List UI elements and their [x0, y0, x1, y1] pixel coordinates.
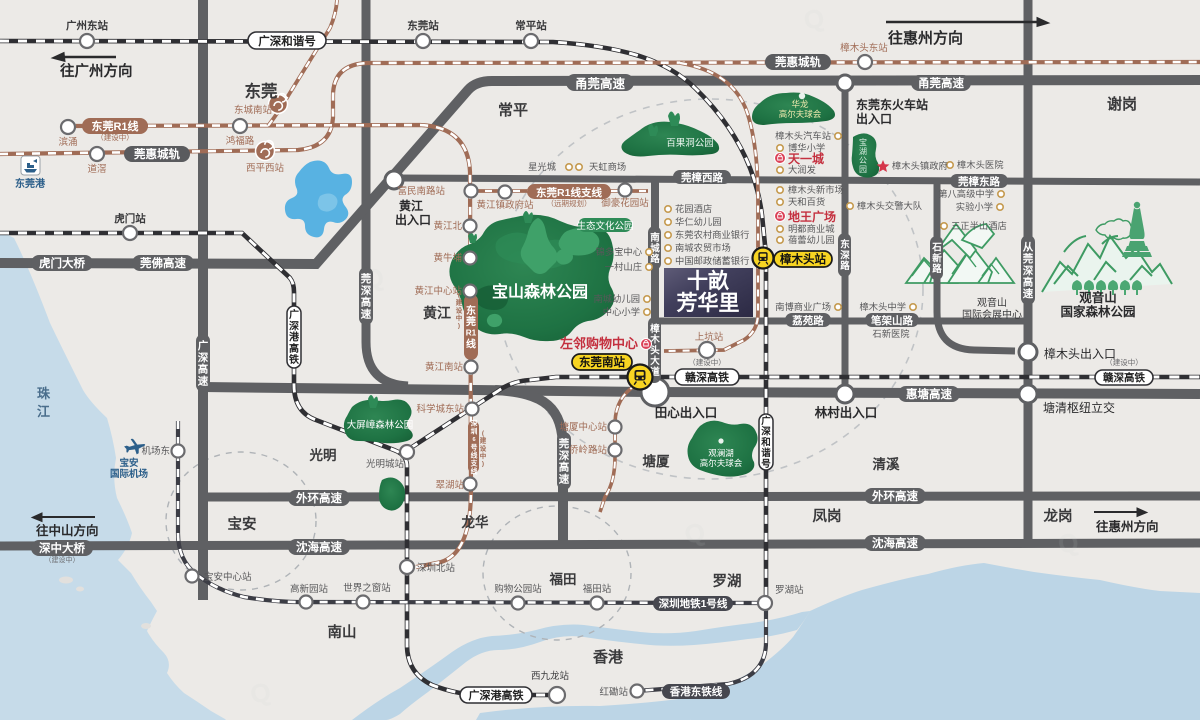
svg-text:樟木头中学: 樟木头中学 [860, 301, 907, 312]
svg-text:南山: 南山 [328, 623, 357, 641]
svg-text:石: 石 [931, 243, 942, 254]
svg-text:一村山庄: 一村山庄 [605, 261, 642, 272]
svg-text:三正半山酒店: 三正半山酒店 [951, 220, 1007, 231]
svg-text:谐: 谐 [761, 447, 771, 459]
svg-text:深: 深 [840, 249, 850, 261]
svg-text:左邻购物中心: 左邻购物中心 [560, 336, 638, 351]
svg-text:（建设中）: （建设中） [45, 555, 80, 564]
svg-text:广: 广 [198, 339, 209, 352]
svg-text:福田: 福田 [549, 571, 577, 587]
svg-text:往惠州方向: 往惠州方向 [1096, 519, 1159, 534]
svg-text:华仁幼儿园: 华仁幼儿园 [675, 216, 722, 227]
svg-text:第八高级中学: 第八高级中学 [938, 188, 994, 199]
svg-text:东莞东火车站: 东莞东火车站 [856, 97, 928, 112]
svg-text:路: 路 [932, 263, 942, 275]
svg-text:线: 线 [466, 337, 476, 350]
svg-text:道滘: 道滘 [87, 163, 106, 175]
svg-text:实验小学: 实验小学 [956, 201, 993, 212]
svg-text:生态文化公园: 生态文化公园 [576, 220, 633, 232]
svg-text:南: 南 [650, 232, 660, 244]
svg-text:林村出入口: 林村出入口 [815, 405, 878, 420]
svg-text:惠塘高速: 惠塘高速 [906, 387, 952, 401]
svg-text:高新园站: 高新园站 [290, 583, 329, 595]
svg-text:莞: 莞 [466, 315, 476, 328]
svg-text:深圳北站: 深圳北站 [417, 562, 456, 574]
svg-text:头: 头 [650, 344, 660, 356]
svg-text:南城农贸市场: 南城农贸市场 [675, 242, 731, 253]
svg-text:): ) [482, 461, 484, 468]
svg-text:荔苑路: 荔苑路 [791, 314, 824, 327]
svg-text:港: 港 [289, 331, 300, 344]
svg-text:罗湖: 罗湖 [713, 573, 742, 590]
svg-text:西九龙站: 西九龙站 [531, 670, 570, 682]
svg-text:（远期规划）: （远期规划） [547, 198, 592, 208]
svg-text:莞樟东路: 莞樟东路 [957, 175, 1000, 188]
svg-text:深圳地铁1号线: 深圳地铁1号线 [659, 597, 728, 610]
svg-text:中: 中 [480, 451, 487, 460]
svg-text:清溪: 清溪 [873, 456, 901, 472]
svg-text:香港: 香港 [593, 648, 624, 666]
svg-text:宝安: 宝安 [228, 515, 257, 533]
svg-text:天一城: 天一城 [788, 151, 824, 166]
svg-text:外环高速: 外环高速 [871, 489, 918, 503]
svg-text:黄江北: 黄江北 [433, 220, 462, 232]
svg-text:速: 速 [1023, 287, 1034, 300]
svg-text:樟木头站: 樟木头站 [779, 252, 826, 266]
svg-text:高: 高 [289, 342, 299, 355]
svg-text:高: 高 [1023, 276, 1034, 289]
svg-text:深: 深 [361, 284, 372, 297]
svg-text:广: 广 [289, 308, 299, 321]
svg-text:湖: 湖 [859, 147, 867, 156]
svg-text:博华小学: 博华小学 [788, 142, 825, 153]
svg-text:龙华: 龙华 [461, 514, 489, 530]
svg-text:南博商业广场: 南博商业广场 [775, 301, 831, 312]
svg-text:速: 速 [361, 307, 372, 320]
svg-text:凤岗: 凤岗 [813, 507, 842, 525]
svg-text:天虹商场: 天虹商场 [589, 161, 626, 172]
svg-text:樟木头交警大队: 樟木头交警大队 [857, 200, 923, 211]
svg-text:光明城站: 光明城站 [366, 458, 405, 470]
svg-text:上坑站: 上坑站 [695, 331, 724, 343]
svg-text:广深港高铁: 广深港高铁 [469, 688, 524, 702]
svg-text:莞: 莞 [360, 272, 372, 285]
svg-text:东: 东 [466, 304, 476, 317]
svg-text:深中大桥: 深中大桥 [39, 541, 85, 555]
svg-text:中国邮政储蓄银行: 中国邮政储蓄银行 [675, 255, 749, 266]
svg-text:往中山方向: 往中山方向 [36, 523, 99, 538]
svg-text:甬莞高速: 甬莞高速 [575, 76, 626, 91]
svg-text:线: 线 [471, 450, 478, 459]
svg-text:光明: 光明 [309, 447, 337, 463]
svg-text:赣深高铁: 赣深高铁 [685, 370, 729, 384]
svg-text:深: 深 [198, 351, 209, 364]
svg-text:世界之窗站: 世界之窗站 [343, 582, 391, 594]
svg-text:科学城东站: 科学城东站 [416, 403, 464, 415]
svg-text:地王广场: 地王广场 [788, 209, 836, 224]
svg-text:新: 新 [932, 252, 942, 264]
svg-text:东莞港: 东莞港 [15, 177, 46, 190]
svg-text:东莞R1线: 东莞R1线 [91, 119, 138, 133]
svg-text:花园酒店: 花园酒店 [675, 203, 712, 214]
svg-text:侨岭路站: 侨岭路站 [569, 444, 608, 456]
svg-text:建: 建 [479, 436, 487, 445]
svg-text:东莞南站: 东莞南站 [579, 355, 625, 369]
svg-text:谢岗: 谢岗 [1107, 95, 1137, 113]
svg-text:高尔夫球会: 高尔夫球会 [700, 458, 743, 468]
svg-text:大: 大 [650, 355, 660, 367]
svg-text:黄牛埔: 黄牛埔 [433, 252, 462, 264]
svg-text:星光城: 星光城 [528, 161, 556, 172]
svg-text:莞佛高速: 莞佛高速 [139, 256, 186, 270]
svg-text:锦多宝中心: 锦多宝中心 [596, 246, 643, 257]
svg-text:深: 深 [1023, 264, 1034, 277]
svg-text:大润发: 大润发 [788, 164, 816, 175]
svg-text:宝安中心站: 宝安中心站 [204, 571, 252, 583]
svg-text:樟木头镇政府: 樟木头镇政府 [892, 160, 948, 171]
svg-text:赣深高铁: 赣深高铁 [1103, 371, 1145, 384]
svg-text:设: 设 [456, 305, 463, 314]
svg-text:田心出入口: 田心出入口 [655, 405, 718, 420]
svg-text:莞惠城轨: 莞惠城轨 [133, 147, 180, 161]
svg-text:蓓蕾幼儿园: 蓓蕾幼儿园 [788, 234, 835, 245]
svg-text:圳: 圳 [471, 426, 478, 435]
svg-text:百果洞公园: 百果洞公园 [666, 138, 714, 149]
svg-text:沈海高速: 沈海高速 [872, 536, 918, 550]
svg-text:常平: 常平 [498, 101, 528, 119]
svg-text:速: 速 [198, 374, 209, 387]
svg-text:观澜湖: 观澜湖 [708, 448, 734, 458]
svg-text:国家森林公园: 国家森林公园 [1060, 304, 1135, 319]
svg-text:龙岗: 龙岗 [1043, 507, 1073, 525]
svg-text:深: 深 [471, 418, 478, 427]
svg-text:滨涌: 滨涌 [58, 136, 77, 148]
svg-text:速: 速 [559, 472, 570, 485]
svg-text:购物公园站: 购物公园站 [494, 583, 542, 595]
svg-text:西平西站: 西平西站 [246, 162, 285, 174]
svg-text:高: 高 [559, 461, 570, 474]
svg-text:香港东铁线: 香港东铁线 [669, 685, 723, 698]
svg-text:樟木头汽车站: 樟木头汽车站 [775, 130, 831, 141]
svg-text:建: 建 [455, 298, 463, 307]
svg-text:中心小学: 中心小学 [603, 306, 640, 317]
svg-text:支: 支 [470, 458, 478, 467]
svg-text:笔架山路: 笔架山路 [871, 314, 913, 327]
svg-text:富民南路站: 富民南路站 [397, 185, 445, 197]
svg-text:园: 园 [859, 165, 867, 174]
svg-text:广州东站: 广州东站 [66, 19, 108, 32]
svg-text:东: 东 [840, 239, 850, 251]
svg-text:高尔夫球会: 高尔夫球会 [779, 109, 822, 119]
svg-text:高: 高 [361, 296, 372, 309]
svg-text:华龙: 华龙 [791, 99, 809, 109]
svg-text:芳华里: 芳华里 [677, 291, 740, 315]
svg-text:东莞R1线支线: 东莞R1线支线 [536, 186, 602, 199]
svg-text:鸿福路: 鸿福路 [226, 135, 255, 147]
svg-text:机场东: 机场东 [141, 445, 170, 457]
svg-text:红磡站: 红磡站 [599, 686, 628, 698]
svg-text:黄江: 黄江 [423, 305, 451, 321]
svg-text:天和百货: 天和百货 [788, 196, 825, 207]
svg-text:线: 线 [471, 466, 478, 475]
svg-text:广: 广 [761, 415, 771, 427]
svg-text:福田站: 福田站 [583, 583, 612, 595]
svg-text:路: 路 [840, 260, 850, 272]
svg-text:莞惠城轨: 莞惠城轨 [774, 55, 821, 69]
svg-text:号: 号 [761, 459, 771, 470]
svg-text:从: 从 [1023, 241, 1034, 253]
svg-text:往惠州方向: 往惠州方向 [888, 29, 963, 47]
svg-text:出入口: 出入口 [856, 111, 892, 126]
svg-text:珠: 珠 [37, 386, 51, 401]
svg-text:号: 号 [471, 442, 478, 451]
svg-text:R1: R1 [466, 329, 477, 338]
svg-text:御豪花园站: 御豪花园站 [601, 197, 649, 209]
svg-text:宝安: 宝安 [119, 457, 139, 469]
svg-text:罗湖站: 罗湖站 [775, 584, 804, 596]
svg-text:东莞站: 东莞站 [407, 19, 439, 32]
svg-text:江: 江 [37, 404, 50, 419]
svg-text:观音山: 观音山 [1079, 290, 1117, 305]
svg-text:外环高速: 外环高速 [295, 491, 342, 505]
svg-text:东莞: 东莞 [245, 81, 278, 101]
svg-text:虎门站: 虎门站 [114, 212, 146, 225]
svg-text:公: 公 [859, 156, 867, 165]
svg-text:6: 6 [472, 437, 475, 443]
svg-text:深: 深 [761, 426, 771, 438]
svg-text:东城南站: 东城南站 [234, 104, 273, 116]
svg-text:莞樟西路: 莞樟西路 [680, 171, 723, 184]
svg-text:宝山森林公园: 宝山森林公园 [492, 282, 588, 301]
svg-text:黄江镇政府站: 黄江镇政府站 [476, 199, 534, 211]
svg-text:黄江南站: 黄江南站 [425, 361, 464, 373]
svg-text:铁: 铁 [289, 353, 299, 366]
svg-text:樟木头医院: 樟木头医院 [957, 159, 1004, 170]
svg-text:甬莞高速: 甬莞高速 [918, 76, 964, 90]
svg-text:（建设中）: （建设中） [96, 132, 134, 142]
svg-text:大屏嶂森林公园: 大屏嶂森林公园 [347, 419, 414, 431]
svg-text:樟木头出入口: 樟木头出入口 [1044, 346, 1116, 361]
svg-text:沈海高速: 沈海高速 [296, 540, 342, 554]
svg-text:和: 和 [760, 436, 771, 448]
svg-text:塘厦中心站: 塘厦中心站 [559, 421, 607, 433]
svg-text:常平站: 常平站 [515, 19, 547, 32]
svg-text:广深和谐号: 广深和谐号 [258, 34, 316, 48]
svg-text:南城幼儿园: 南城幼儿园 [594, 293, 641, 304]
svg-text:樟木头新市场: 樟木头新市场 [788, 184, 844, 195]
svg-text:翠湖站: 翠湖站 [435, 479, 464, 491]
svg-text:中: 中 [456, 313, 463, 322]
svg-text:出入口: 出入口 [395, 212, 431, 227]
svg-text:塘厦: 塘厦 [643, 453, 671, 469]
svg-text:明都商业城: 明都商业城 [788, 223, 835, 234]
svg-text:往广州方向: 往广州方向 [60, 62, 133, 80]
svg-text:宝: 宝 [859, 137, 867, 147]
svg-text:): ) [458, 323, 460, 330]
svg-text:樟木头东站: 樟木头东站 [840, 42, 888, 54]
svg-text:黄江中心站: 黄江中心站 [414, 285, 462, 297]
svg-text:黄江: 黄江 [399, 198, 423, 213]
svg-text:国际机场: 国际机场 [110, 468, 149, 480]
svg-text:莞: 莞 [558, 437, 570, 450]
svg-text:虎门大桥: 虎门大桥 [39, 256, 85, 270]
svg-text:高: 高 [198, 363, 209, 376]
svg-text:观音山: 观音山 [977, 296, 1007, 309]
svg-text:莞: 莞 [1022, 252, 1034, 265]
svg-text:石新医院: 石新医院 [872, 328, 909, 339]
svg-text:东莞农村商业银行: 东莞农村商业银行 [675, 229, 749, 240]
svg-text:国际会展中心: 国际会展中心 [962, 308, 1022, 321]
svg-text:设: 设 [480, 443, 487, 452]
svg-text:深: 深 [289, 319, 299, 332]
svg-text:樟: 樟 [649, 323, 660, 335]
svg-text:塘清枢纽立交: 塘清枢纽立交 [1043, 400, 1115, 415]
svg-text:十畝: 十畝 [687, 269, 730, 293]
